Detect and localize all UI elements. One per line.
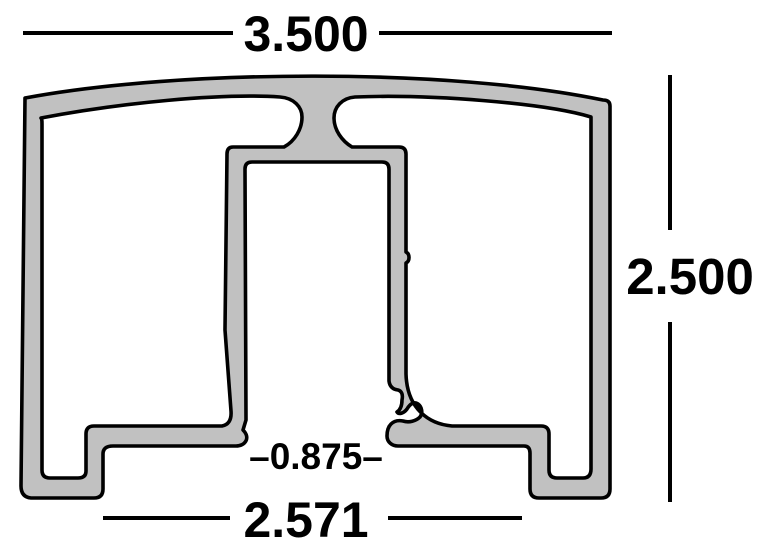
opening-dim-label: –0.875– [249, 436, 383, 477]
bottom-width-dim-label: 2.571 [243, 492, 368, 545]
extrusion-cross-section-drawing: 3.500 2.500 –0.875– 2.571 [0, 0, 763, 545]
height-dim-label: 2.500 [626, 248, 754, 305]
technical-drawing-canvas: 3.500 2.500 –0.875– 2.571 [0, 0, 763, 545]
top-width-dim-label: 3.500 [243, 6, 368, 62]
extrusion-profile-shape [21, 76, 610, 498]
